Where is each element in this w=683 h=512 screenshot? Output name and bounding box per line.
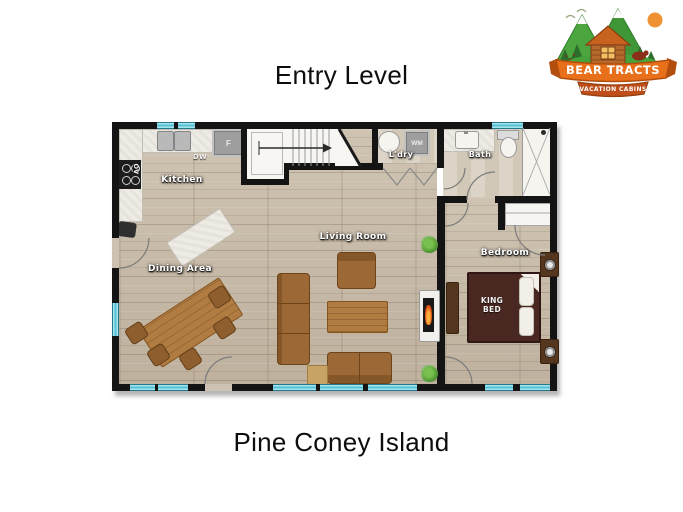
side-table bbox=[307, 365, 328, 385]
nightstand bbox=[540, 252, 559, 277]
wall-stairs bbox=[284, 163, 383, 170]
king-bed: KING BED bbox=[467, 272, 541, 343]
room-label-living: Living Room bbox=[313, 232, 393, 242]
window bbox=[320, 384, 363, 391]
loveseat bbox=[327, 352, 392, 384]
bedroom-closet bbox=[505, 203, 552, 226]
logo-tagline-text: VACATION CABINS bbox=[579, 86, 646, 93]
room-label-bedroom: Bedroom bbox=[475, 248, 535, 258]
coffee-table bbox=[327, 301, 388, 333]
wall-laundry bbox=[437, 122, 444, 168]
plant-icon bbox=[421, 365, 438, 382]
window bbox=[273, 384, 316, 391]
door-opening bbox=[205, 384, 232, 391]
page: Entry Level Pine Coney Island bbox=[0, 0, 683, 512]
window bbox=[112, 303, 119, 336]
shower bbox=[522, 127, 552, 198]
pillow bbox=[519, 307, 534, 336]
shower-head-icon bbox=[541, 130, 546, 135]
oven-label: OV bbox=[132, 163, 140, 175]
pillow bbox=[519, 277, 534, 306]
vanity-faucet bbox=[464, 131, 468, 134]
dishwasher-label: DW bbox=[186, 153, 214, 161]
plant-icon bbox=[421, 236, 438, 253]
wall-stairs bbox=[241, 179, 289, 185]
wall-laundry bbox=[372, 122, 378, 170]
washer-label: WM bbox=[411, 140, 423, 147]
window bbox=[520, 384, 550, 391]
king-bed-label: KING BED bbox=[471, 296, 513, 314]
room-label-bath: Bath bbox=[455, 150, 505, 159]
kitchen-bin bbox=[117, 221, 137, 238]
window bbox=[492, 122, 523, 129]
window bbox=[130, 384, 155, 391]
logo-brand-text: BEAR TRACTS bbox=[566, 63, 660, 77]
cabin-logo-icon: BEAR TRACTS VACATION CABINS bbox=[546, 2, 680, 104]
room-label-kitchen: Kitchen bbox=[152, 175, 212, 185]
armchair bbox=[337, 252, 376, 289]
wall-stairs bbox=[241, 122, 247, 184]
fire-icon bbox=[425, 305, 432, 325]
wall-closet bbox=[498, 196, 505, 230]
fireplace bbox=[419, 290, 440, 342]
room-label-laundry: L'dry bbox=[376, 150, 426, 159]
staircase bbox=[287, 129, 335, 166]
brand-logo: BEAR TRACTS VACATION CABINS bbox=[546, 2, 680, 104]
lamp-icon bbox=[545, 347, 555, 357]
window bbox=[485, 384, 513, 391]
nightstand bbox=[540, 339, 559, 364]
floorplan: F WM bbox=[112, 122, 557, 391]
window bbox=[368, 384, 417, 391]
window bbox=[157, 122, 174, 129]
room-label-dining: Dining Area bbox=[140, 264, 220, 274]
plan-name-caption: Pine Coney Island bbox=[0, 427, 683, 458]
window bbox=[158, 384, 188, 391]
window bbox=[178, 122, 195, 129]
sofa-long bbox=[277, 273, 310, 365]
door-opening bbox=[112, 238, 119, 268]
wall-hall bbox=[438, 196, 467, 203]
bedroom-dresser bbox=[446, 282, 459, 334]
kitchen-sink bbox=[157, 131, 191, 149]
fridge-label: F bbox=[226, 139, 231, 148]
stair-landing bbox=[247, 129, 287, 179]
lamp-icon bbox=[545, 260, 555, 270]
